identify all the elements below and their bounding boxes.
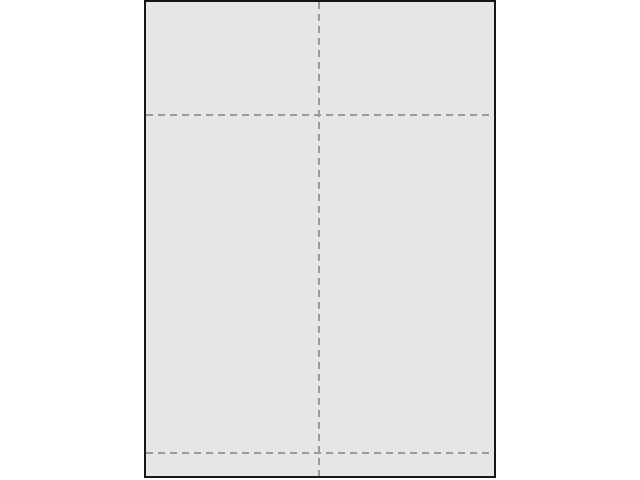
page-canvas: [144, 0, 496, 478]
preview-workspace: [0, 0, 640, 480]
